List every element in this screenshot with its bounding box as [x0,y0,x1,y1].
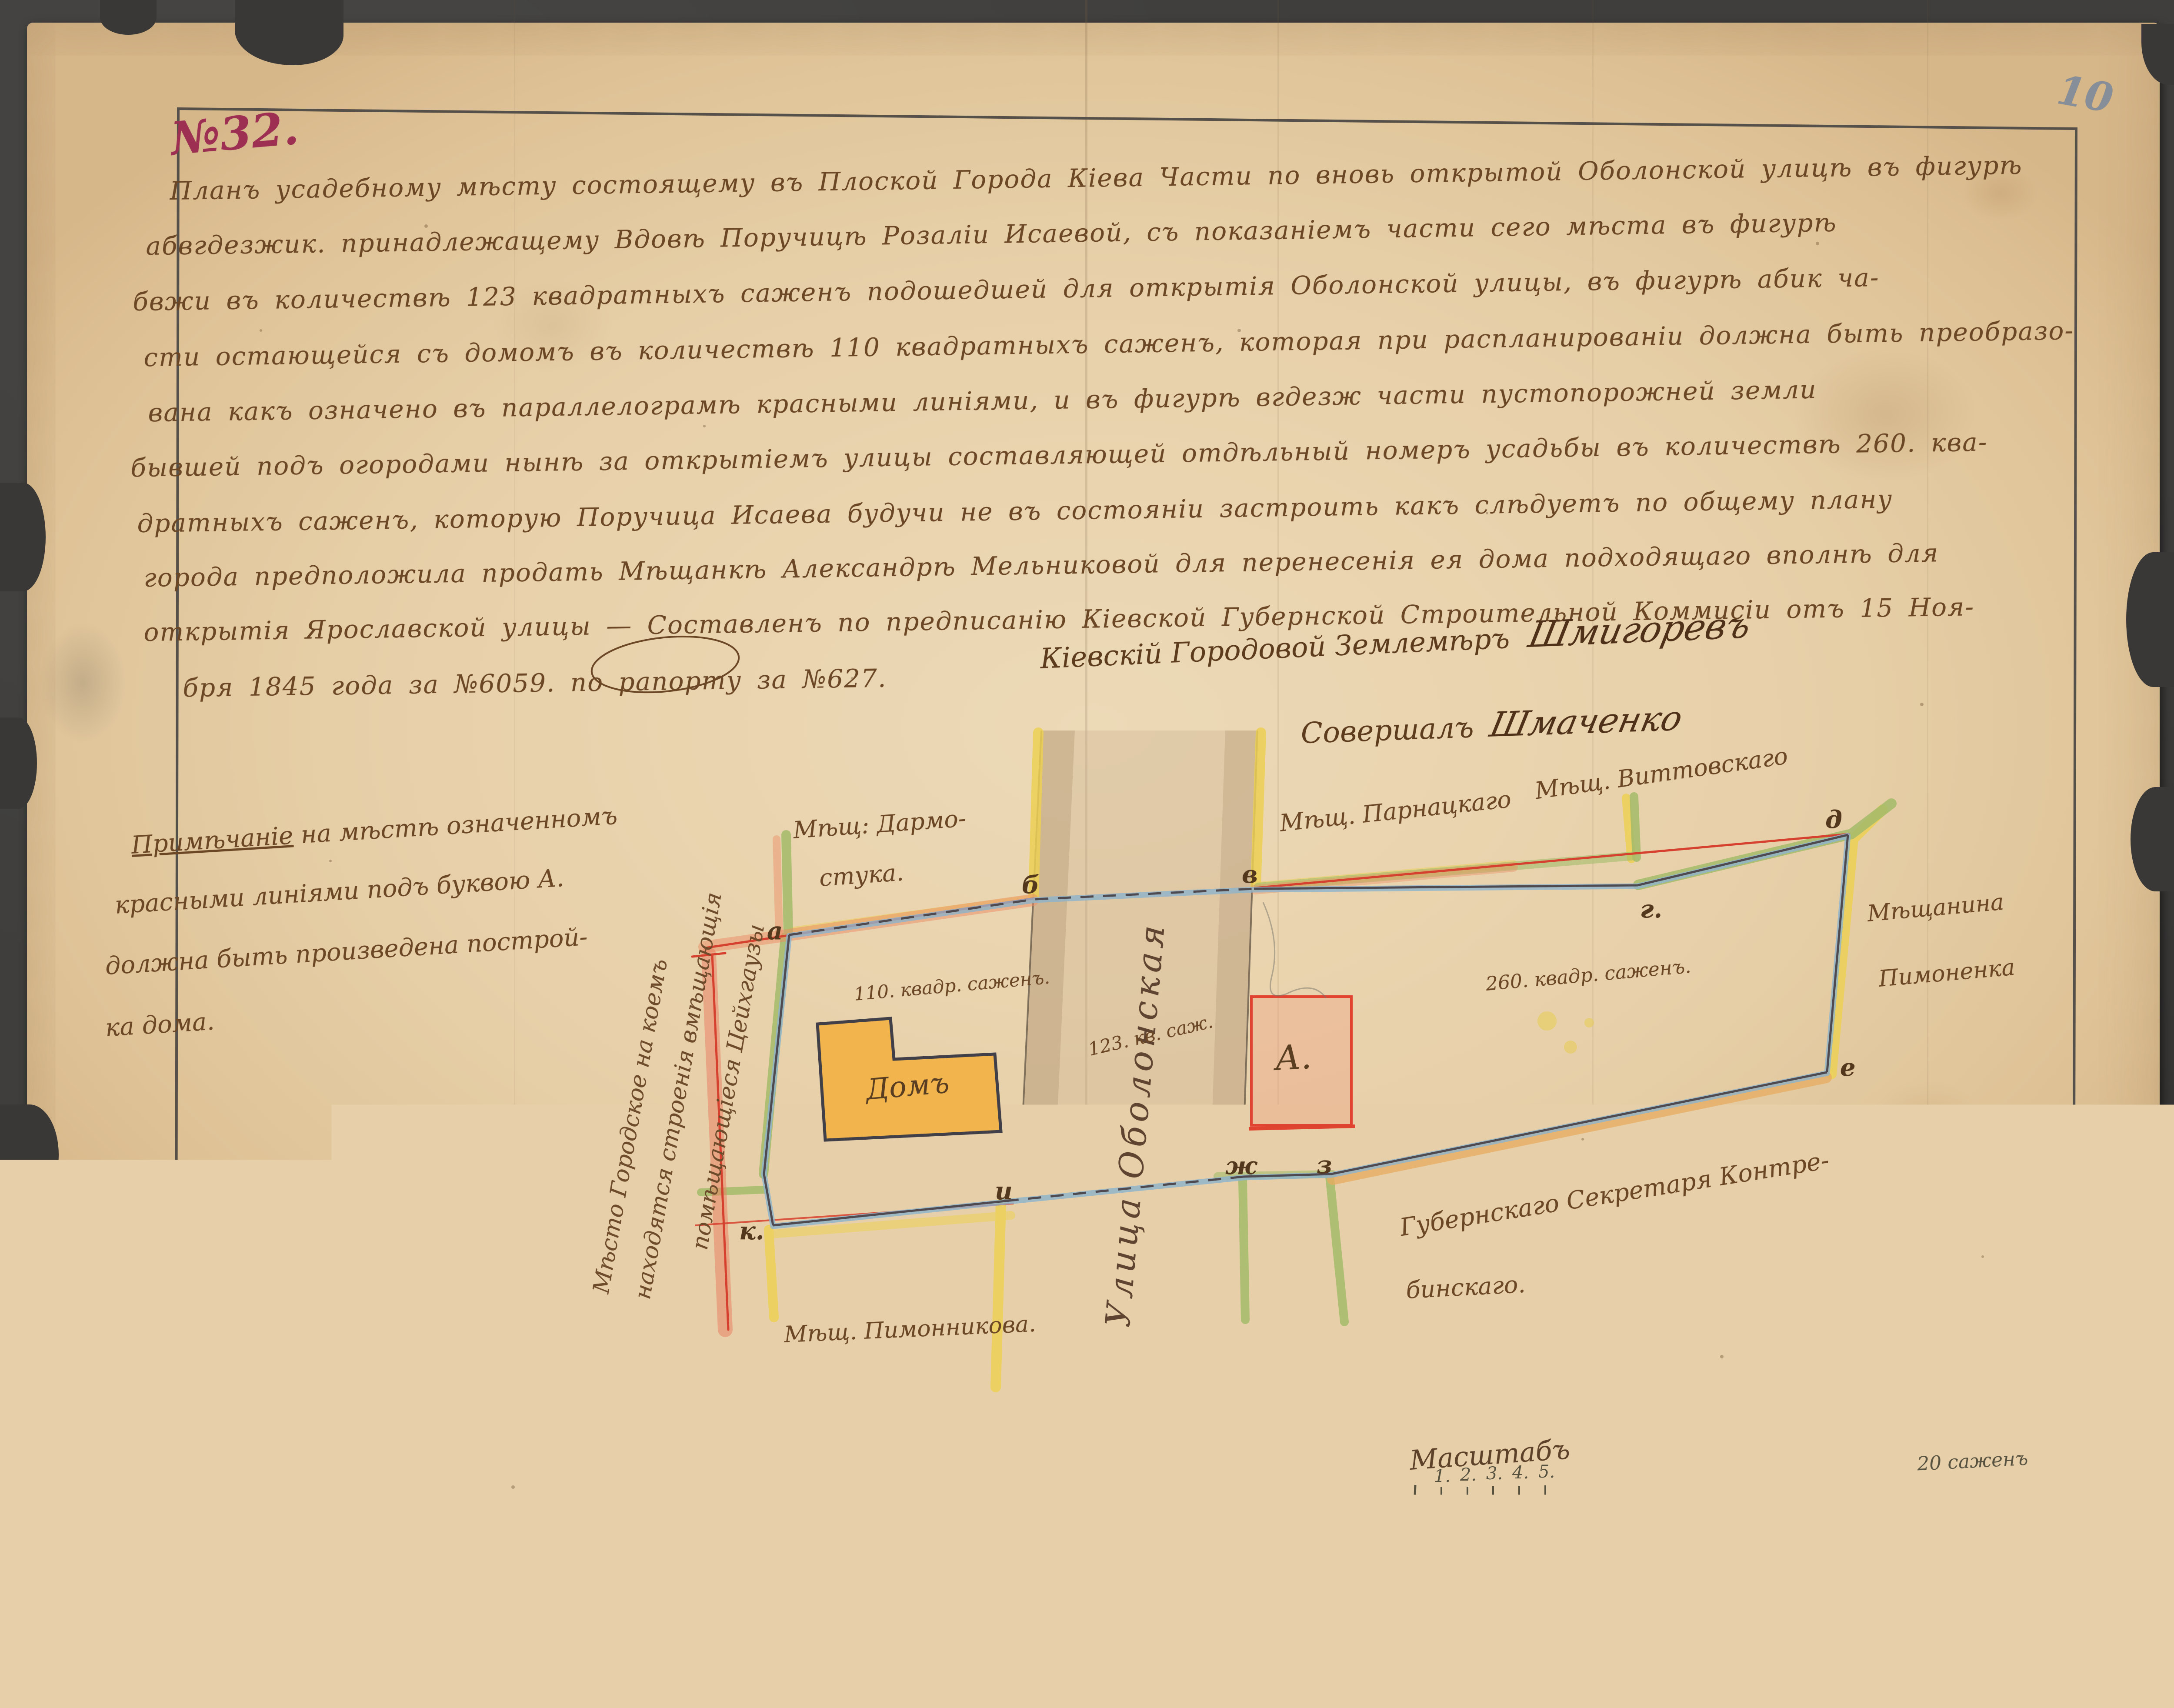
pencil-mark: 20 [205,1606,231,1630]
registry-number: №32. [169,101,301,165]
scale-tick-label: 5. [1538,1462,1555,1482]
scale-tick-label: 15 [1794,1458,1816,1478]
scale-tick-label: 4. [1512,1463,1529,1483]
scale-tick-label: 3. [1486,1464,1503,1484]
corner-letter-g: г. [1640,895,1662,924]
scale-tick-label: 10 [1665,1459,1687,1479]
corner-letter-z: з [1317,1151,1332,1179]
second-role: Совершалъ [1300,711,1474,750]
scale-bar [1414,1484,1936,1513]
pencil-squiggle [1263,902,1326,998]
corner-letter-d: д [1825,805,1842,834]
parcel-a-letter: А. [1274,1037,1312,1078]
corner-letter-e: е [1840,1053,1856,1082]
corner-letter-k: к. [739,1217,764,1245]
corner-letter-i: и [995,1177,1013,1205]
corner-letter-zh: ж [1225,1151,1257,1180]
corner-letter-v: в [1242,860,1258,889]
scale-tick-label: 2. [1460,1465,1477,1485]
yellow-stain-spots [1537,1011,1594,1054]
corner-letter-b: б [1022,871,1039,899]
page-number: 10 [2054,66,2117,122]
corner-letter-a: а [767,917,783,945]
second-name: Шмаченко [1487,699,1686,745]
scale-tick-label: 1. [1434,1466,1450,1486]
